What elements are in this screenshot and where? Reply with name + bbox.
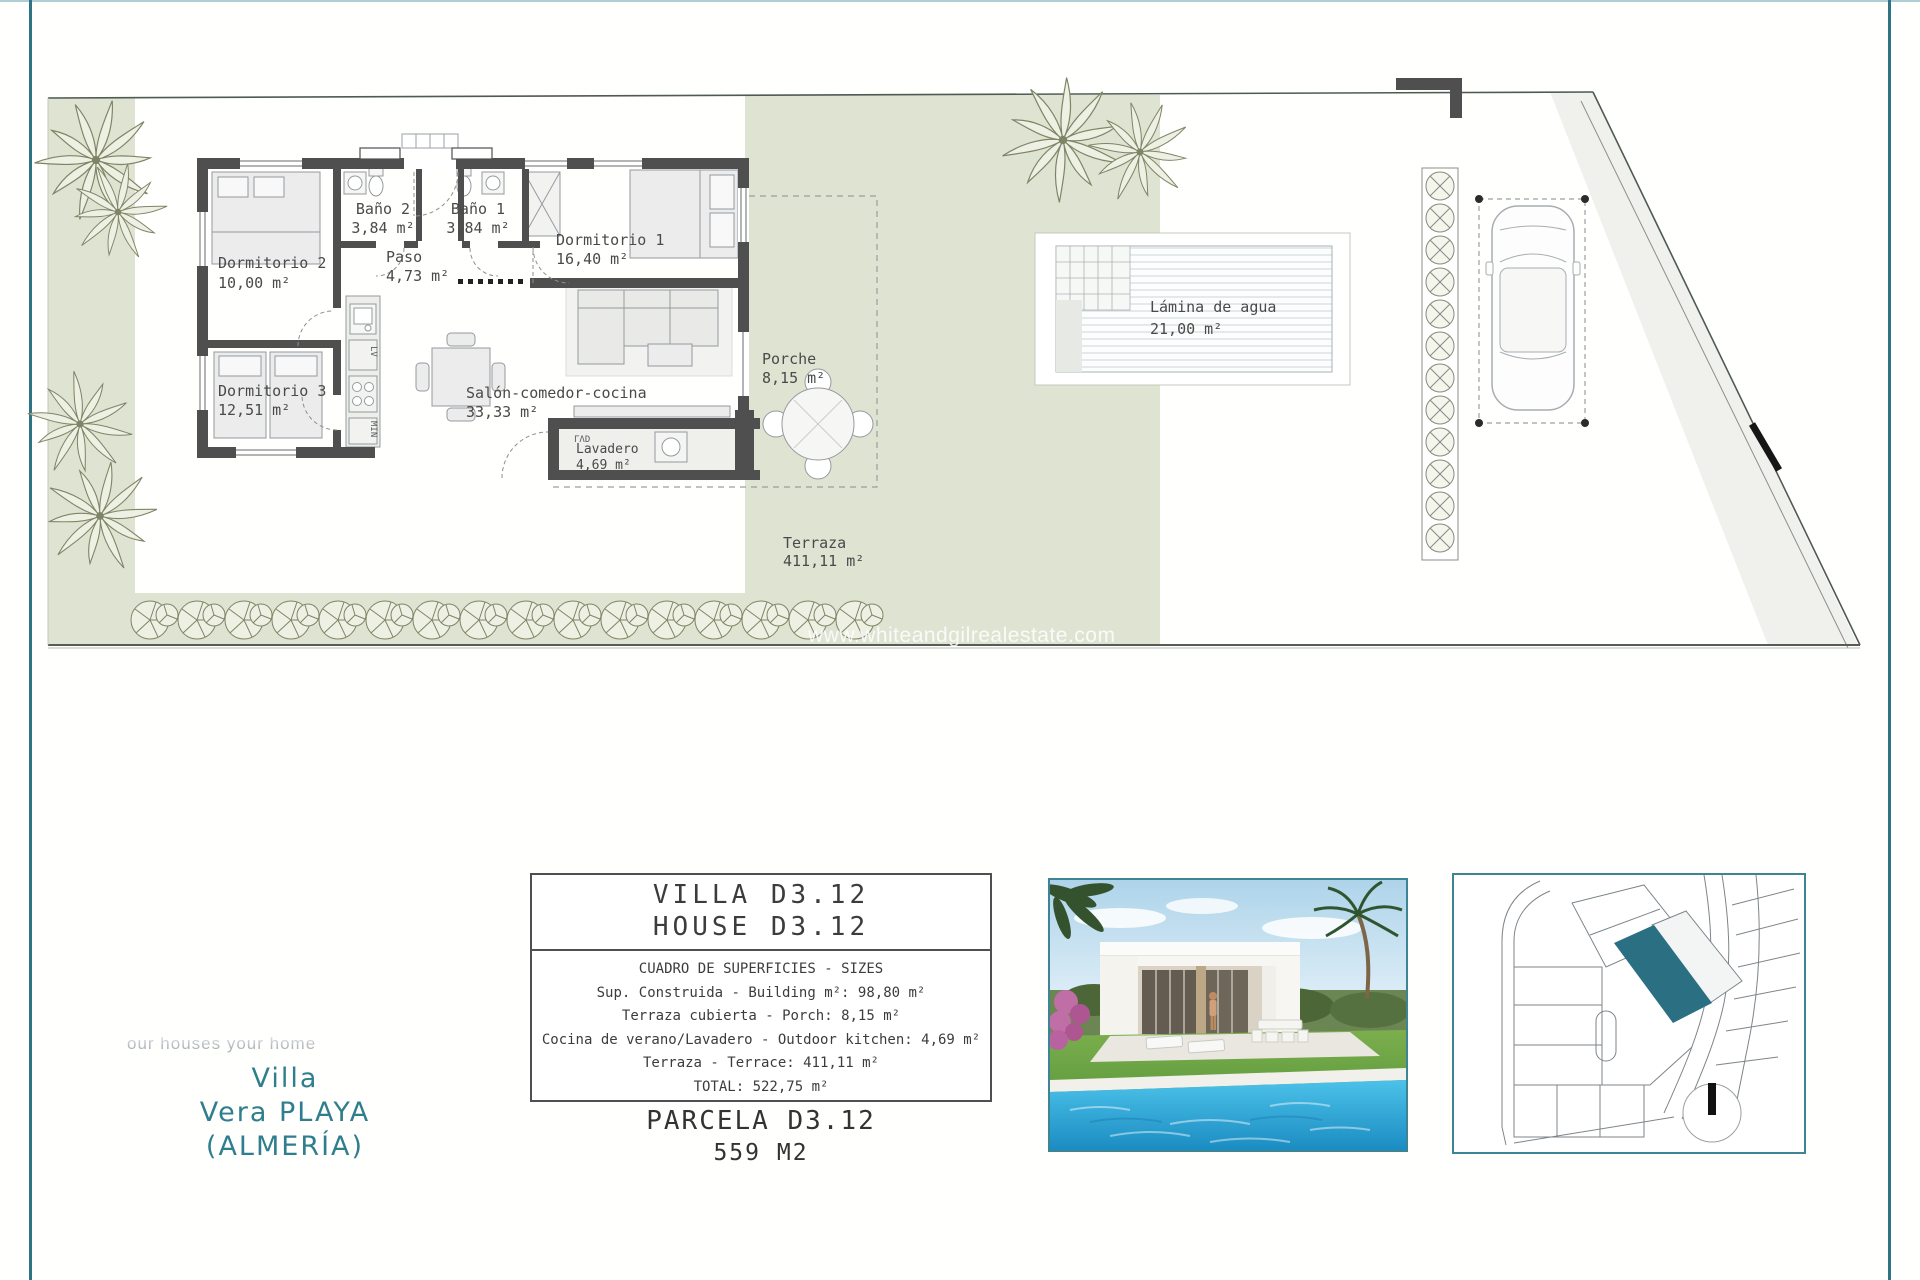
- sizes-row: Sup. Construida - Building m²: 98,80 m²: [532, 982, 990, 1006]
- location-map: [1452, 873, 1806, 1154]
- kitchen-mark-lv: LV: [368, 346, 378, 357]
- brand-location-block: Villa Vera PLAYA (ALMERÍA): [118, 1062, 452, 1164]
- parking-hedge: [1396, 78, 1462, 560]
- villa-render-photo: [1048, 878, 1408, 1152]
- sizes-row: CUADRO DE SUPERFICIES - SIZES: [532, 958, 990, 982]
- room-label-dormitorio3-area: 12,51 m²: [218, 401, 290, 419]
- site-plan: Lámina de agua 21,00 m²: [0, 0, 1920, 680]
- room-label-bano1-name: Baño 1: [451, 200, 505, 218]
- compass-needle: [1708, 1083, 1716, 1115]
- pool-label-name: Lámina de agua: [1150, 298, 1276, 316]
- room-label-porche-area: 8,15 m²: [762, 369, 825, 387]
- room-label-porche-name: Porche: [762, 350, 816, 368]
- room-label-bano1-area: 3,84 m²: [446, 219, 509, 237]
- room-label-dormitorio2-area: 10,00 m²: [218, 274, 290, 292]
- sizes-title: VILLA D3.12 HOUSE D3.12: [532, 875, 990, 951]
- sizes-info-box: VILLA D3.12 HOUSE D3.12 CUADRO DE SUPERF…: [530, 873, 992, 1102]
- parcel-size-label: 559 M2: [530, 1140, 992, 1166]
- brand-line-vera-playa: Vera PLAYA: [118, 1096, 452, 1130]
- house-title: HOUSE D3.12: [532, 911, 990, 943]
- room-label-dormitorio2-name: Dormitorio 2: [218, 254, 326, 272]
- map-compass: [1683, 1083, 1741, 1142]
- washing-machine: [655, 432, 687, 462]
- watermark: www.whiteandgilrealestate.com: [808, 624, 1115, 648]
- bathroom2-fixtures: [344, 168, 383, 196]
- room-label-terraza-area: 411,11 m²: [783, 552, 864, 570]
- pool-label-area: 21,00 m²: [1150, 320, 1222, 338]
- room-label-paso-name: Paso: [386, 248, 422, 266]
- room-label-bano2-name: Baño 2: [356, 200, 410, 218]
- sizes-row: Terraza cubierta - Porch: 8,15 m²: [532, 1005, 990, 1029]
- swimming-pool: Lámina de agua 21,00 m²: [1035, 233, 1350, 385]
- car-icon: [1486, 206, 1580, 410]
- room-label-bano2-area: 3,84 m²: [351, 219, 414, 237]
- tv-unit: [574, 406, 730, 417]
- parcel-label: PARCELA D3.12: [530, 1106, 992, 1136]
- sizes-row: TOTAL: 522,75 m²: [532, 1076, 990, 1100]
- coffee-table: [648, 344, 692, 366]
- brochure-page: Lámina de agua 21,00 m²: [0, 0, 1920, 1280]
- location-map-drawing: [1454, 875, 1804, 1152]
- room-label-dormitorio1-area: 16,40 m²: [556, 250, 628, 268]
- appliance-mark: ΓΛD: [574, 435, 590, 445]
- room-label-salon-area: 33,33 m²: [466, 403, 538, 421]
- wardrobe-dorm1: [524, 172, 560, 236]
- room-label-dormitorio1-name: Dormitorio 1: [556, 231, 664, 249]
- double-bed-dorm2: [212, 172, 320, 264]
- room-label-terraza-name: Terraza: [783, 534, 846, 552]
- villa-render-scene: [1050, 880, 1406, 1150]
- room-label-salon-name: Salón-comedor-cocina: [466, 384, 647, 402]
- villa-title: VILLA D3.12: [532, 879, 990, 911]
- parking-spot: [1475, 195, 1589, 427]
- entry-steps: [402, 134, 458, 148]
- room-label-lavadero-area: 4,69 m²: [576, 458, 631, 473]
- sizes-row: Terraza - Terrace: 411,11 m²: [532, 1052, 990, 1076]
- brand-slogan: our houses your home: [127, 1034, 316, 1054]
- kitchen-mark-min: MIN: [368, 421, 378, 437]
- brand-line-villa: Villa: [118, 1062, 452, 1096]
- sizes-row: Cocina de verano/Lavadero - Outdoor kitc…: [532, 1029, 990, 1053]
- sliding-door-dots: [458, 279, 523, 284]
- room-label-paso-area: 4,73 m²: [386, 267, 449, 285]
- room-label-dormitorio3-name: Dormitorio 3: [218, 382, 326, 400]
- sizes-rows: CUADRO DE SUPERFICIES - SIZES Sup. Const…: [532, 951, 990, 1099]
- bathroom1-fixtures: [457, 168, 504, 196]
- brand-line-almeria: (ALMERÍA): [118, 1130, 452, 1164]
